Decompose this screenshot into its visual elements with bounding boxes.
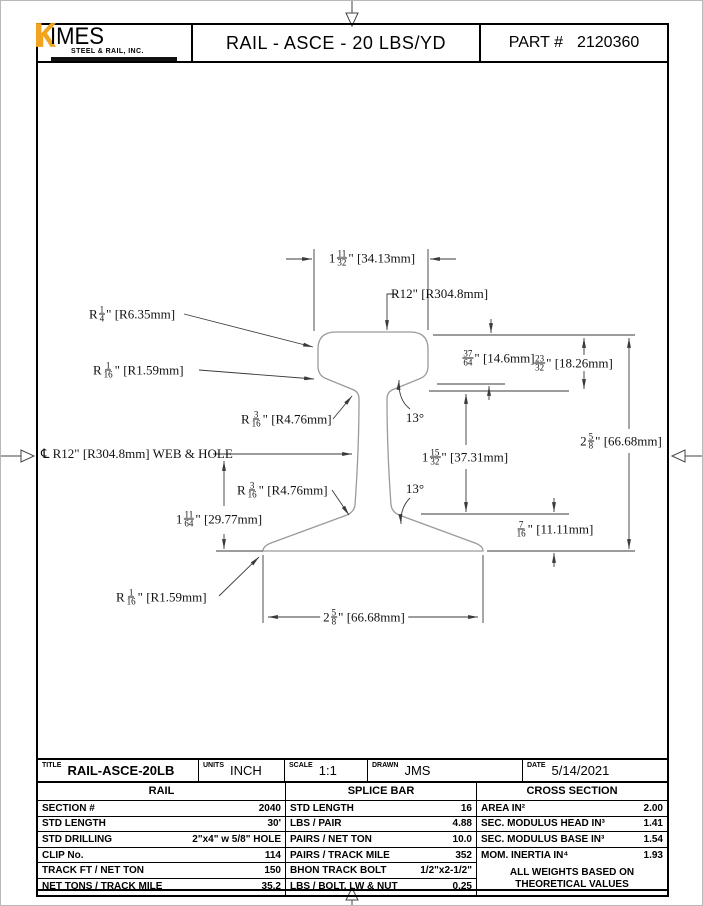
spec-value: 4.88 bbox=[453, 818, 472, 829]
table-row: STD LENGTH16 bbox=[286, 801, 476, 817]
field-value: RAIL-ASCE-20LB bbox=[67, 763, 174, 778]
spec-value: 114 bbox=[265, 850, 281, 861]
spec-value: 10.0 bbox=[453, 834, 472, 845]
spec-label: PAIRS / NET TON bbox=[290, 834, 372, 845]
field-scale: SCALE 1:1 bbox=[285, 760, 368, 781]
field-label: DATE bbox=[527, 762, 546, 769]
spec-value: 2.00 bbox=[644, 803, 663, 814]
cross-table-rows: AREA IN²2.00SEC. MODULUS HEAD IN³1.41SEC… bbox=[477, 801, 667, 863]
dimension-lines bbox=[224, 259, 629, 617]
weights-note-line2: THEORETICAL VALUES bbox=[515, 879, 629, 891]
table-row: CLIP No.114 bbox=[38, 848, 285, 864]
spec-value: 35.2 bbox=[262, 881, 281, 892]
spec-value: 1/2"x2-1/2" bbox=[420, 865, 472, 876]
table-row: PAIRS / TRACK MILE352 bbox=[286, 848, 476, 864]
extension-lines bbox=[216, 249, 635, 623]
part-number-label: PART # bbox=[509, 34, 563, 52]
rail-table-rows: SECTION #2040STD LENGTH30'STD DRILLING2"… bbox=[38, 801, 285, 895]
logo-name: IMES bbox=[50, 26, 104, 48]
field-value: 1:1 bbox=[319, 763, 337, 778]
spec-label: SEC. MODULUS BASE IN³ bbox=[481, 834, 604, 845]
table-row: STD LENGTH30' bbox=[38, 817, 285, 833]
table-row: PAIRS / NET TON10.0 bbox=[286, 832, 476, 848]
sheet-header: IMES STEEL & RAIL, INC. RAIL - ASCE - 20… bbox=[36, 23, 669, 63]
spec-value: 16 bbox=[461, 803, 472, 814]
field-date: DATE 5/14/2021 bbox=[523, 760, 667, 781]
logo-wordmark: IMES bbox=[50, 26, 109, 48]
spec-label: STD LENGTH bbox=[290, 803, 354, 814]
spec-label: LBS / PAIR bbox=[290, 818, 341, 829]
splice-table-rows: STD LENGTH16LBS / PAIR4.88PAIRS / NET TO… bbox=[286, 801, 476, 895]
drawing-sheet: 11132" [34.13mm]R12" [R304.8mm]R14" [R6.… bbox=[0, 0, 703, 906]
field-value: INCH bbox=[230, 763, 262, 778]
table-row: SECTION #2040 bbox=[38, 801, 285, 817]
table-row: LBS / PAIR4.88 bbox=[286, 817, 476, 833]
spec-value: 2040 bbox=[259, 803, 281, 814]
table-row: LBS / BOLT, LW & NUT0.25 bbox=[286, 879, 476, 895]
cross-section-table: CROSS SECTION AREA IN²2.00SEC. MODULUS H… bbox=[477, 783, 667, 895]
field-label: TITLE bbox=[42, 762, 61, 769]
field-label: UNITS bbox=[203, 762, 224, 769]
spec-value: 1.41 bbox=[644, 818, 663, 829]
spec-value: 2"x4" w 5/8" HOLE bbox=[192, 834, 281, 845]
spec-label: MOM. INERTIA IN⁴ bbox=[481, 850, 568, 861]
field-units: UNITS INCH bbox=[199, 760, 285, 781]
table-row: SEC. MODULUS HEAD IN³1.41 bbox=[477, 817, 667, 833]
rail-table: RAIL SECTION #2040STD LENGTH30'STD DRILL… bbox=[38, 783, 286, 895]
weights-note-line1: ALL WEIGHTS BASED ON bbox=[510, 867, 634, 879]
spec-label: PAIRS / TRACK MILE bbox=[290, 850, 390, 861]
field-value: JMS bbox=[404, 763, 430, 778]
logo-underline bbox=[51, 57, 177, 61]
spec-label: STD LENGTH bbox=[42, 818, 106, 829]
spec-value: 30' bbox=[267, 818, 281, 829]
spec-label: BHON TRACK BOLT bbox=[290, 865, 386, 876]
spec-label: NET TONS / TRACK MILE bbox=[42, 881, 162, 892]
field-label: SCALE bbox=[289, 762, 313, 769]
field-drawn: DRAWN JMS bbox=[368, 760, 523, 781]
part-number-value: 2120360 bbox=[577, 34, 639, 52]
part-number-box: PART # 2120360 bbox=[481, 23, 669, 63]
spec-label: SEC. MODULUS HEAD IN³ bbox=[481, 818, 605, 829]
company-logo: IMES STEEL & RAIL, INC. bbox=[36, 23, 191, 63]
table-row: NET TONS / TRACK MILE35.2 bbox=[38, 879, 285, 895]
splice-table-header: SPLICE BAR bbox=[286, 783, 476, 801]
field-title: TITLE RAIL-ASCE-20LB bbox=[38, 760, 199, 781]
spec-value: 150 bbox=[264, 865, 281, 876]
spec-tables: RAIL SECTION #2040STD LENGTH30'STD DRILL… bbox=[38, 783, 667, 895]
table-row: STD DRILLING2"x4" w 5/8" HOLE bbox=[38, 832, 285, 848]
table-row: BHON TRACK BOLT1/2"x2-1/2" bbox=[286, 863, 476, 879]
spec-label: LBS / BOLT, LW & NUT bbox=[290, 881, 398, 892]
table-row: MOM. INERTIA IN⁴1.93 bbox=[477, 848, 667, 864]
field-value: 5/14/2021 bbox=[552, 763, 610, 778]
rail-table-header: RAIL bbox=[38, 783, 285, 801]
spec-value: 1.93 bbox=[644, 850, 663, 861]
spec-label: CLIP No. bbox=[42, 850, 83, 861]
cross-table-header: CROSS SECTION bbox=[477, 783, 667, 801]
weights-note: ALL WEIGHTS BASED ON THEORETICAL VALUES bbox=[477, 863, 667, 894]
spec-label: AREA IN² bbox=[481, 803, 525, 814]
splice-bar-table: SPLICE BAR STD LENGTH16LBS / PAIR4.88PAI… bbox=[286, 783, 477, 895]
table-row: TRACK FT / NET TON150 bbox=[38, 863, 285, 879]
title-block: TITLE RAIL-ASCE-20LB UNITS INCH SCALE 1:… bbox=[36, 758, 669, 897]
spec-value: 352 bbox=[455, 850, 472, 861]
spec-label: SECTION # bbox=[42, 803, 95, 814]
field-label: DRAWN bbox=[372, 762, 398, 769]
spec-value: 0.25 bbox=[453, 881, 472, 892]
sheet-title: RAIL - ASCE - 20 LBS/YD bbox=[191, 23, 481, 63]
spec-label: STD DRILLING bbox=[42, 834, 112, 845]
spec-label: TRACK FT / NET TON bbox=[42, 865, 144, 876]
title-block-row: TITLE RAIL-ASCE-20LB UNITS INCH SCALE 1:… bbox=[38, 760, 667, 783]
table-row: AREA IN²2.00 bbox=[477, 801, 667, 817]
rail-outline bbox=[263, 332, 483, 551]
spec-value: 1.54 bbox=[644, 834, 663, 845]
table-row: SEC. MODULUS BASE IN³1.54 bbox=[477, 832, 667, 848]
